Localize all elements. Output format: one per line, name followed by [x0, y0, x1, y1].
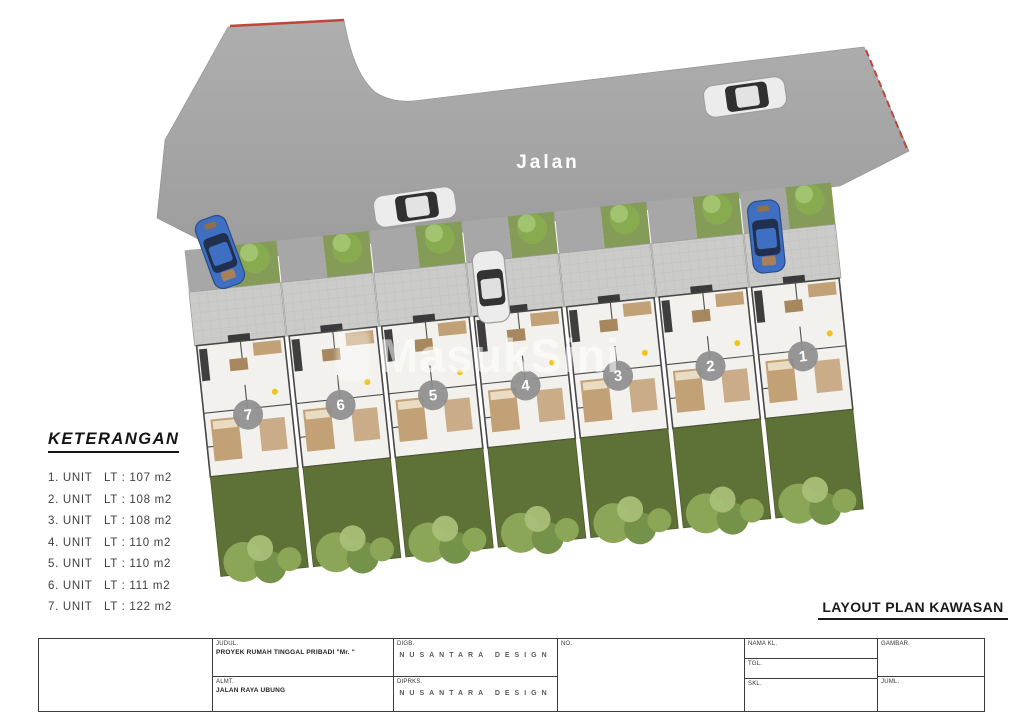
unit-number-label: 5	[428, 387, 438, 405]
site-plan-page: 1 2	[0, 0, 1024, 723]
title-block-sheet-col: GAMBAR. JUML.	[877, 639, 984, 711]
legend-item: 1. UNIT LT : 107 m2	[48, 468, 179, 490]
unit-number-label: 1	[798, 348, 808, 366]
gambar-label: GAMBAR.	[881, 641, 981, 647]
judul-value: PROYEK RUMAH TINGGAL PRIBADI "Mr. "	[216, 649, 390, 656]
legend-item: 3. UNIT LT : 108 m2	[48, 511, 179, 533]
almt-value: JALAN RAYA UBUNG	[216, 687, 390, 694]
legend: KETERANGAN 1. UNIT LT : 107 m22. UNIT LT…	[48, 430, 179, 619]
unit-number-label: 6	[336, 397, 346, 415]
watermark-logo	[336, 331, 370, 381]
legend-title: KETERANGAN	[48, 430, 179, 453]
title-block-no-col: NO.	[557, 639, 744, 711]
road-label: Jalan	[516, 152, 580, 173]
housing-units-row: 1 2	[185, 182, 867, 588]
legend-item: 6. UNIT LT : 111 m2	[48, 576, 179, 598]
nama-label: NAMA KL.	[748, 641, 874, 647]
title-block-designer-col: DIGB. NUSANTARA DESIGN DIPRKS. NUSANTARA…	[393, 639, 557, 711]
watermark: MasukSini	[336, 328, 620, 383]
diprks-label: DIPRKS.	[397, 679, 554, 685]
almt-label: ALMT.	[216, 679, 390, 685]
skl-label: SKL.	[748, 681, 874, 687]
tgl-label: TGL.	[748, 661, 874, 667]
judul-label: JUDUL.	[216, 641, 390, 647]
legend-list: 1. UNIT LT : 107 m22. UNIT LT : 108 m23.…	[48, 468, 179, 619]
title-block: JUDUL. PROYEK RUMAH TINGGAL PRIBADI "Mr.…	[38, 638, 985, 712]
white-car	[471, 249, 510, 324]
juml-label: JUML.	[881, 679, 981, 685]
legend-item: 5. UNIT LT : 110 m2	[48, 554, 179, 576]
legend-item: 7. UNIT LT : 122 m2	[48, 597, 179, 619]
drawing-caption: LAYOUT PLAN KAWASAN	[818, 599, 1008, 620]
digb-value: NUSANTARA DESIGN	[397, 652, 554, 659]
no-cell-label: NO.	[561, 641, 741, 647]
unit-number-label: 7	[243, 406, 253, 424]
blue-car	[747, 199, 786, 274]
title-block-meta-col: NAMA KL. TGL. SKL.	[744, 639, 877, 711]
legend-item: 4. UNIT LT : 110 m2	[48, 533, 179, 555]
legend-item: 2. UNIT LT : 108 m2	[48, 490, 179, 512]
digb-label: DIGB.	[397, 641, 554, 647]
unit-number-label: 2	[706, 358, 716, 376]
title-block-project-col: JUDUL. PROYEK RUMAH TINGGAL PRIBADI "Mr.…	[212, 639, 393, 711]
watermark-text: MasukSini	[379, 328, 620, 383]
title-block-empty-cell	[39, 639, 212, 711]
diprks-value: NUSANTARA DESIGN	[397, 690, 554, 697]
